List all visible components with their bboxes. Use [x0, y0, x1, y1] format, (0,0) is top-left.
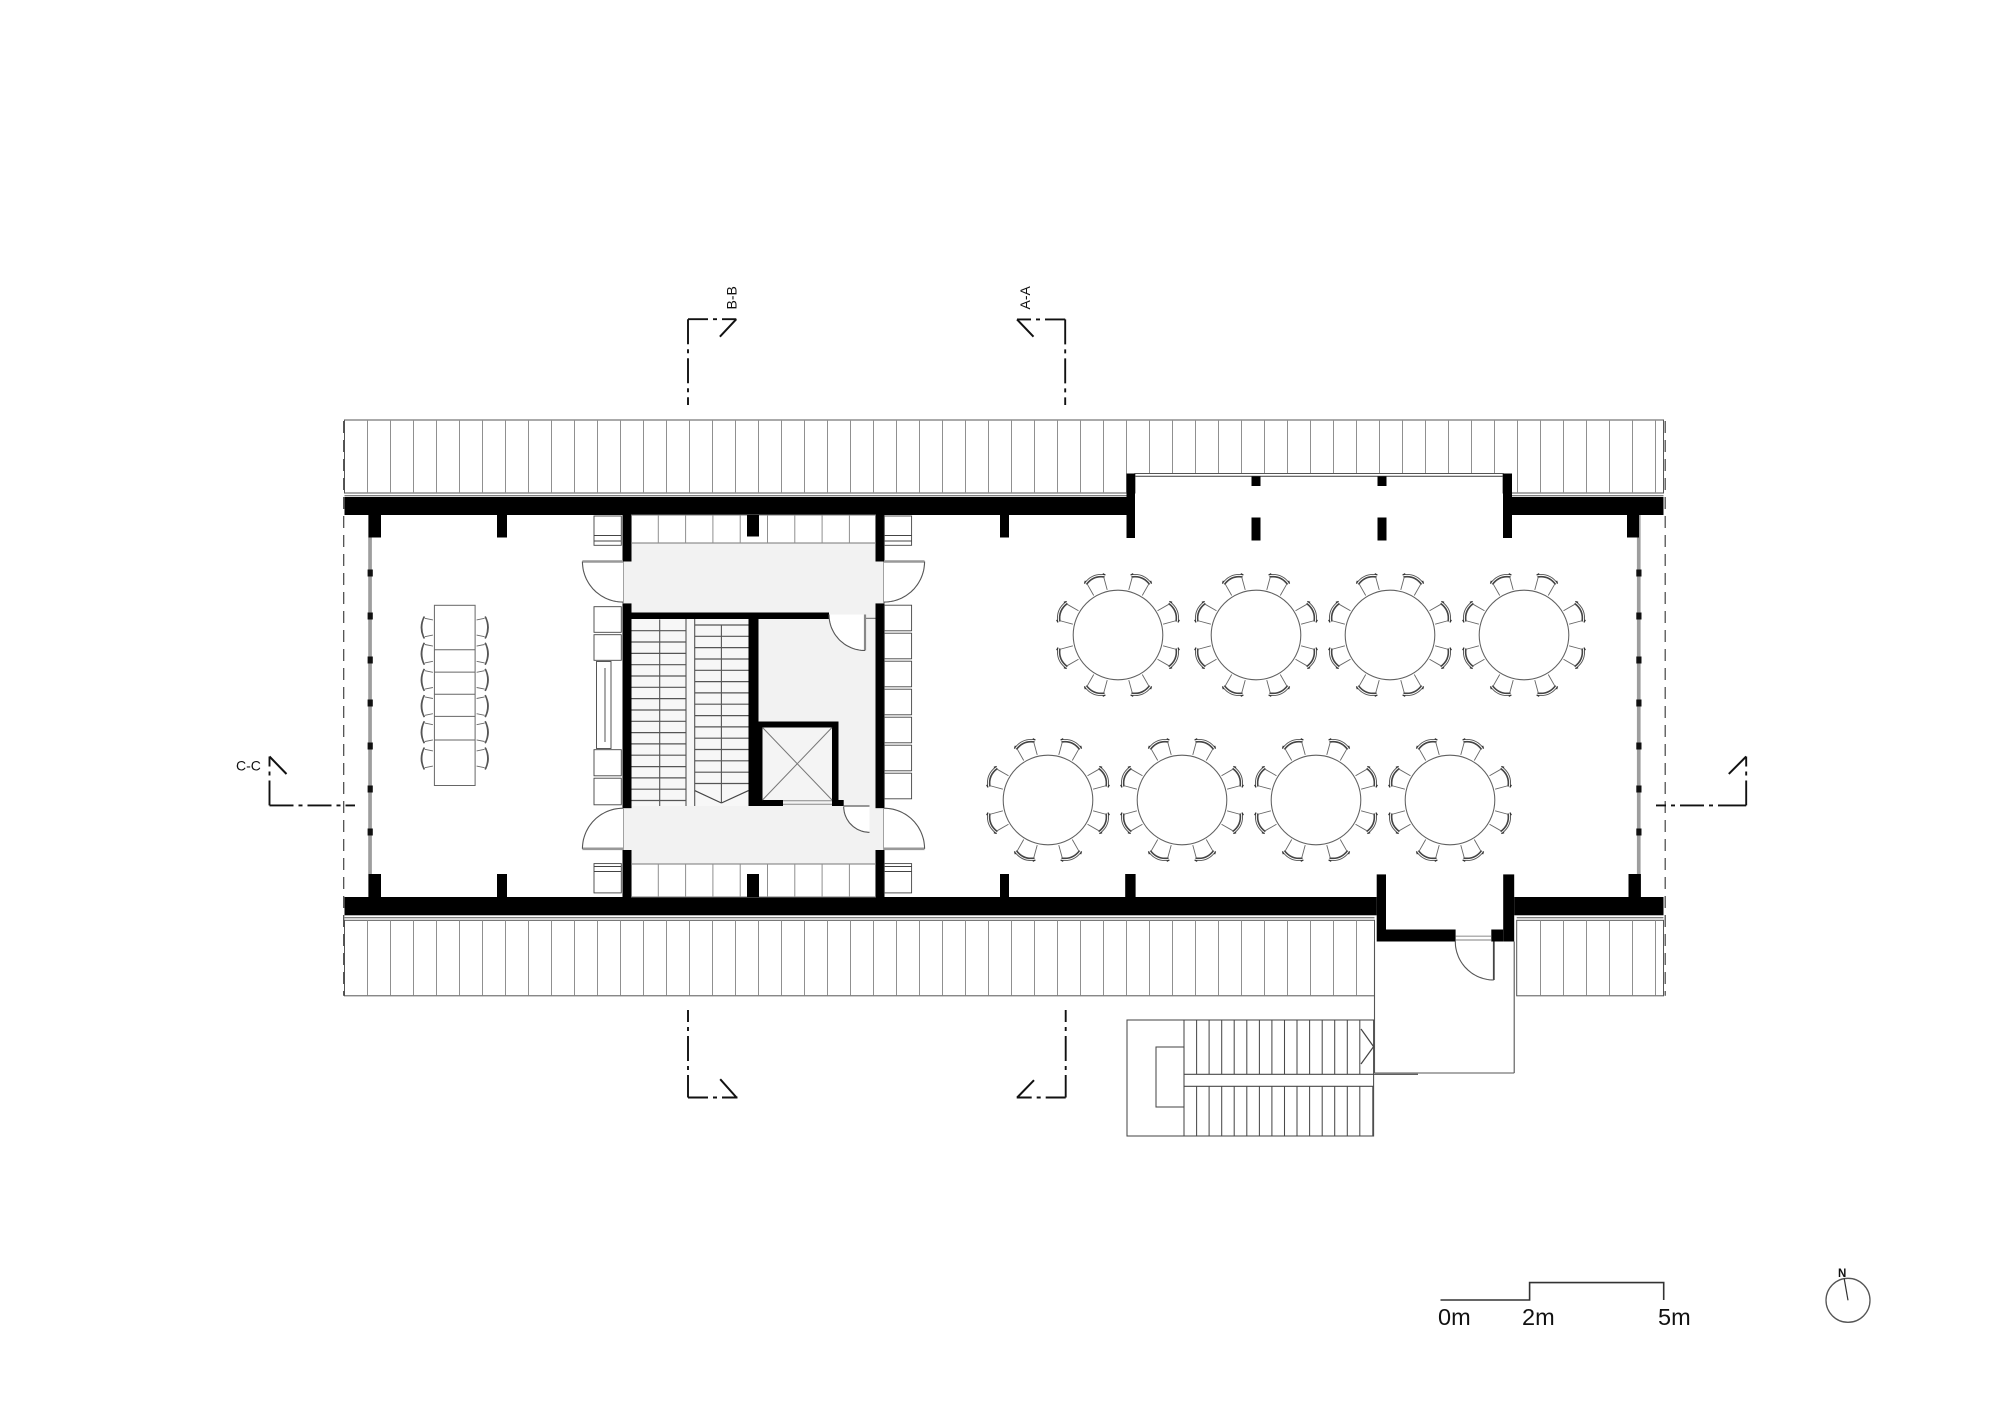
svg-text:N: N — [1838, 1268, 1846, 1280]
svg-text:0m: 0m — [1438, 1304, 1471, 1330]
svg-text:A-A: A-A — [1017, 286, 1033, 310]
svg-text:2m: 2m — [1522, 1304, 1555, 1330]
svg-text:B-B: B-B — [724, 286, 740, 309]
svg-text:C-C: C-C — [236, 758, 261, 774]
svg-text:5m: 5m — [1658, 1304, 1691, 1330]
